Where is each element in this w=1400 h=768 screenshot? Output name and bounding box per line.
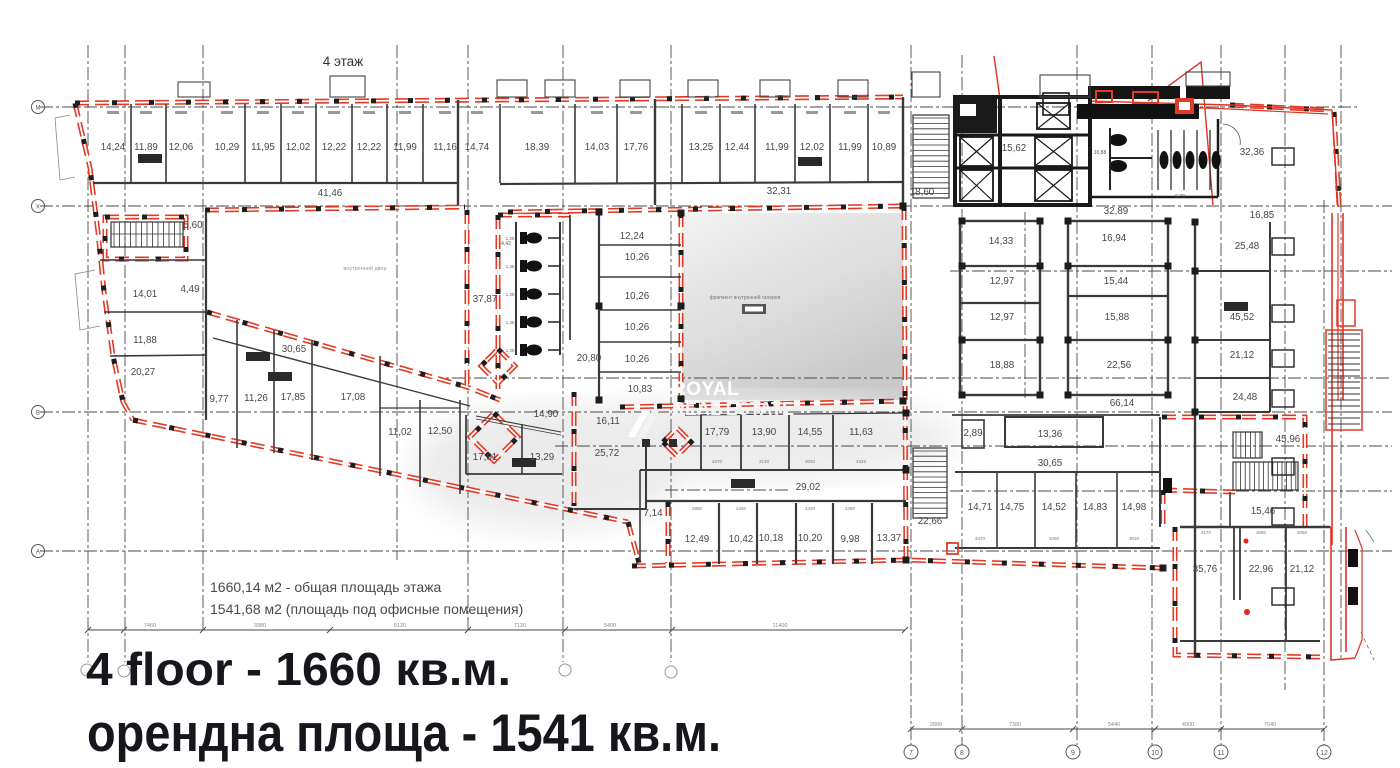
svg-text:14,90: 14,90 [534, 409, 559, 420]
svg-text:1,35: 1,35 [506, 264, 515, 269]
svg-text:11,26: 11,26 [244, 393, 268, 404]
svg-text:18,60: 18,60 [910, 187, 935, 198]
svg-text:9,98: 9,98 [840, 534, 860, 545]
svg-text:10,88: 10,88 [1094, 150, 1107, 156]
svg-text:16,85: 16,85 [1250, 210, 1275, 221]
svg-text:2980: 2980 [692, 506, 703, 511]
svg-text:10,26: 10,26 [625, 354, 650, 365]
svg-text:А: А [36, 550, 40, 556]
svg-text:66,14: 66,14 [1110, 398, 1135, 409]
svg-text:орендна площа - 1541 кв.м.: орендна площа - 1541 кв.м. [87, 704, 721, 763]
svg-text:фрагмент внутренней галереи: фрагмент внутренней галереи [710, 294, 781, 301]
svg-text:ROYAL: ROYAL [672, 379, 739, 400]
svg-text:17,76: 17,76 [624, 142, 649, 153]
svg-text:12,06: 12,06 [169, 142, 194, 153]
svg-text:10,18: 10,18 [759, 533, 784, 544]
svg-text:12,24: 12,24 [620, 231, 645, 242]
svg-text:11,02: 11,02 [388, 427, 412, 438]
svg-text:5400: 5400 [604, 623, 616, 629]
svg-text:2420: 2420 [805, 506, 816, 511]
svg-text:35,76: 35,76 [1193, 564, 1218, 575]
svg-text:15,44: 15,44 [1104, 276, 1129, 287]
svg-text:3080: 3080 [1297, 530, 1308, 535]
svg-text:14,52: 14,52 [1042, 502, 1067, 513]
svg-text:13,36: 13,36 [1038, 429, 1063, 440]
svg-text:4,49: 4,49 [180, 284, 199, 295]
svg-text:30,65: 30,65 [282, 344, 307, 355]
svg-text:4070: 4070 [712, 459, 723, 464]
svg-text:12,97: 12,97 [990, 312, 1015, 323]
svg-text:15,46: 15,46 [1251, 506, 1276, 517]
svg-text:14,01: 14,01 [133, 289, 158, 300]
svg-text:37,87: 37,87 [473, 294, 498, 305]
svg-text:6,79: 6,79 [1175, 194, 1185, 200]
svg-text:4170: 4170 [1201, 530, 1212, 535]
svg-text:8: 8 [960, 750, 964, 757]
svg-text:1541,68 м2 (площадь под офисны: 1541,68 м2 (площадь под офисные помещени… [210, 601, 523, 617]
svg-text:10,26: 10,26 [625, 322, 650, 333]
svg-text:21,12: 21,12 [1290, 564, 1315, 575]
svg-text:REAL ESTATE: REAL ESTATE [672, 399, 794, 419]
svg-text:20,27: 20,27 [131, 367, 156, 378]
svg-text:17,08: 17,08 [341, 392, 366, 403]
svg-text:5,60: 5,60 [183, 220, 203, 231]
svg-text:12,02: 12,02 [286, 142, 311, 153]
svg-text:К: К [36, 205, 40, 211]
svg-text:17,85: 17,85 [281, 392, 306, 403]
svg-text:9120: 9120 [394, 623, 406, 629]
svg-text:3980: 3980 [254, 623, 266, 629]
svg-text:12,44: 12,44 [725, 142, 750, 153]
svg-text:13,37: 13,37 [877, 533, 902, 544]
svg-text:4,42: 4,42 [501, 241, 511, 247]
svg-text:45,96: 45,96 [1276, 434, 1301, 445]
svg-text:15,62: 15,62 [1002, 143, 1027, 154]
svg-text:11400: 11400 [773, 623, 788, 629]
svg-text:14,74: 14,74 [465, 142, 490, 153]
svg-text:14,71: 14,71 [968, 502, 993, 513]
svg-text:15,88: 15,88 [1105, 312, 1130, 323]
svg-text:В: В [36, 411, 40, 417]
svg-text:22,96: 22,96 [1249, 564, 1274, 575]
svg-text:2,89: 2,89 [963, 428, 982, 439]
svg-text:22,56: 22,56 [1107, 360, 1132, 371]
svg-text:М: М [36, 106, 41, 112]
svg-text:25,48: 25,48 [1235, 241, 1260, 252]
svg-text:7040: 7040 [1264, 722, 1276, 728]
svg-text:3345: 3345 [856, 459, 867, 464]
svg-text:2450: 2450 [736, 506, 747, 511]
svg-text:14,03: 14,03 [585, 142, 610, 153]
svg-text:12,02: 12,02 [800, 142, 825, 153]
svg-text:16,94: 16,94 [1102, 233, 1127, 244]
svg-text:11,95: 11,95 [251, 142, 275, 153]
svg-text:21,12: 21,12 [1230, 350, 1255, 361]
svg-text:внутренний двор: внутренний двор [343, 265, 386, 272]
svg-text:14,75: 14,75 [1000, 502, 1025, 513]
svg-text:2880: 2880 [930, 722, 942, 728]
svg-text:17,81: 17,81 [473, 452, 498, 463]
svg-text:13,25: 13,25 [689, 142, 714, 153]
svg-text:3080: 3080 [1256, 530, 1267, 535]
svg-text:13,90: 13,90 [752, 427, 777, 438]
svg-text:22,66: 22,66 [918, 516, 943, 527]
svg-text:3510: 3510 [1129, 536, 1140, 541]
svg-text:1660,14 м2 - общая площадь эта: 1660,14 м2 - общая площадь этажа [210, 579, 442, 595]
svg-text:14,83: 14,83 [1083, 502, 1108, 513]
svg-text:32,89: 32,89 [1104, 206, 1129, 217]
svg-text:12,22: 12,22 [357, 142, 382, 153]
svg-text:3040: 3040 [805, 459, 816, 464]
svg-text:11,99: 11,99 [393, 142, 417, 153]
svg-text:1,35: 1,35 [506, 292, 515, 297]
svg-text:7380: 7380 [1009, 722, 1021, 728]
svg-text:9: 9 [1071, 750, 1075, 757]
svg-text:24,48: 24,48 [1233, 392, 1258, 403]
svg-text:11: 11 [1217, 750, 1224, 757]
svg-text:11,63: 11,63 [849, 427, 873, 438]
svg-text:10,26: 10,26 [625, 252, 650, 263]
svg-text:20,80: 20,80 [577, 353, 602, 364]
svg-text:1,35: 1,35 [506, 348, 515, 353]
svg-text:12,49: 12,49 [685, 534, 710, 545]
svg-text:3470: 3470 [975, 536, 986, 541]
svg-text:10: 10 [1151, 750, 1159, 757]
svg-text:7460: 7460 [144, 623, 156, 629]
svg-text:7,14: 7,14 [643, 508, 663, 519]
svg-text:12,97: 12,97 [990, 276, 1015, 287]
svg-text:7: 7 [909, 750, 913, 757]
svg-text:4 этаж: 4 этаж [323, 54, 363, 69]
svg-text:32,36: 32,36 [1240, 147, 1265, 158]
svg-text:12,50: 12,50 [428, 426, 453, 437]
svg-text:11,89: 11,89 [134, 142, 158, 153]
svg-text:14,24: 14,24 [101, 142, 126, 153]
svg-text:12: 12 [1320, 750, 1328, 757]
svg-text:41,46: 41,46 [318, 188, 343, 199]
svg-text:14,55: 14,55 [798, 427, 823, 438]
svg-text:9,77: 9,77 [209, 394, 228, 405]
svg-text:10,89: 10,89 [872, 142, 897, 153]
svg-text:3130: 3130 [759, 459, 770, 464]
svg-text:25,72: 25,72 [595, 448, 620, 459]
svg-text:3450: 3450 [1049, 536, 1060, 541]
svg-text:18,39: 18,39 [525, 142, 550, 153]
svg-text:14,33: 14,33 [989, 236, 1014, 247]
svg-text:11,88: 11,88 [133, 335, 157, 346]
svg-text:4 floor - 1660 кв.м.: 4 floor - 1660 кв.м. [86, 643, 511, 695]
svg-text:13,29: 13,29 [530, 452, 555, 463]
svg-text:2360: 2360 [845, 506, 856, 511]
svg-text:45,52: 45,52 [1230, 312, 1255, 323]
svg-text:4900: 4900 [1182, 722, 1194, 728]
svg-text:11,99: 11,99 [765, 142, 789, 153]
svg-text:5440: 5440 [1108, 722, 1120, 728]
svg-text:10,26: 10,26 [625, 291, 650, 302]
svg-text:16,11: 16,11 [596, 416, 620, 427]
svg-text:18,88: 18,88 [990, 360, 1015, 371]
svg-text:14,98: 14,98 [1122, 502, 1147, 513]
svg-text:10,20: 10,20 [798, 533, 823, 544]
svg-text:10,29: 10,29 [215, 142, 240, 153]
svg-text:17,79: 17,79 [705, 427, 730, 438]
svg-text:30,65: 30,65 [1038, 458, 1063, 469]
svg-text:10,83: 10,83 [628, 384, 653, 395]
svg-text:32,31: 32,31 [767, 186, 792, 197]
svg-text:11,99: 11,99 [838, 142, 862, 153]
svg-text:12,22: 12,22 [322, 142, 347, 153]
svg-text:7120: 7120 [514, 623, 526, 629]
svg-text:1,35: 1,35 [506, 320, 515, 325]
svg-text:11,16: 11,16 [433, 142, 457, 153]
svg-text:29,02: 29,02 [796, 482, 821, 493]
svg-text:10,42: 10,42 [729, 534, 754, 545]
